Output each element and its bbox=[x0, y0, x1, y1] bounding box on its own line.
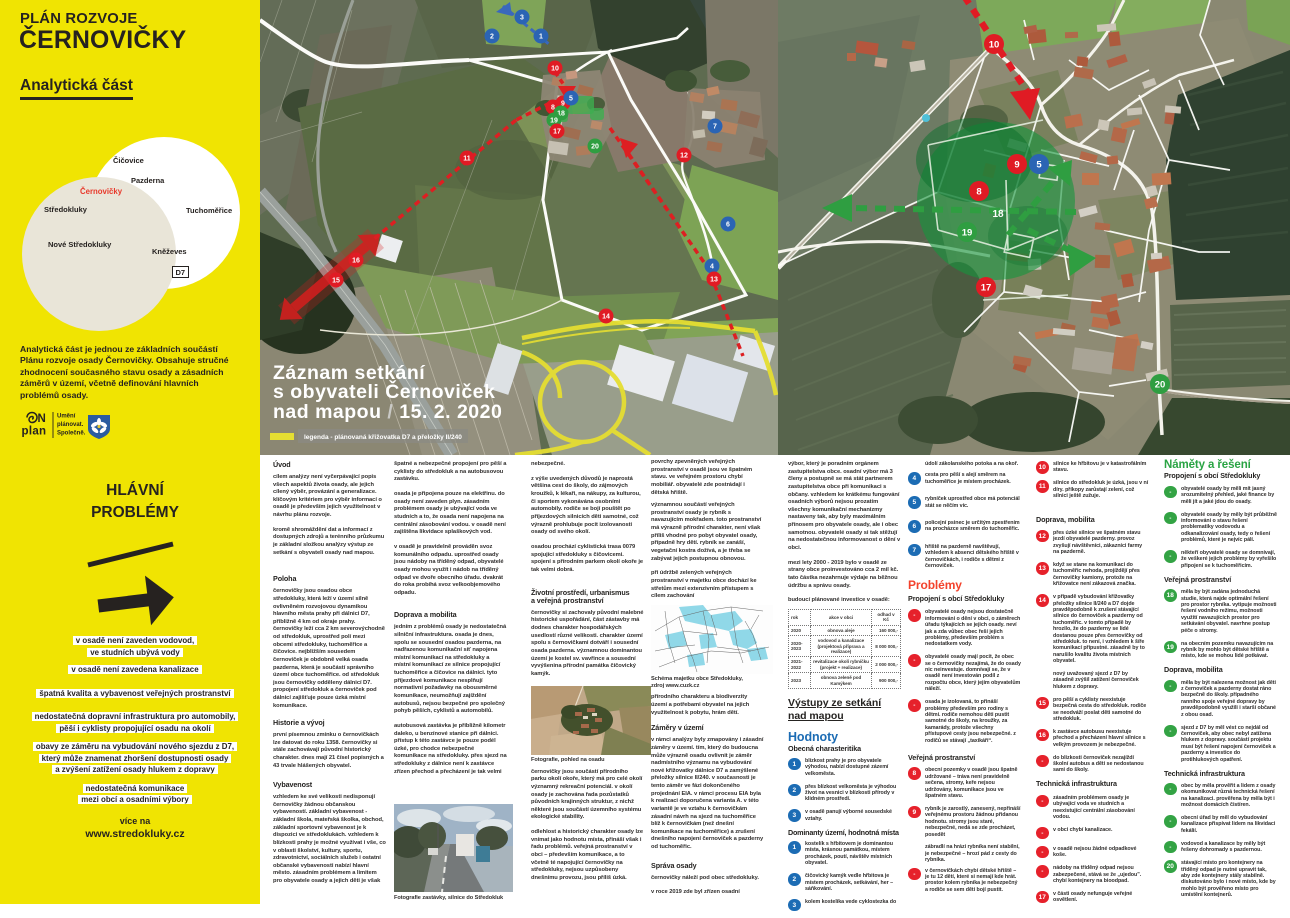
svg-text:2: 2 bbox=[490, 34, 494, 41]
svg-text:4: 4 bbox=[710, 264, 714, 271]
svg-text:1: 1 bbox=[539, 34, 543, 41]
svg-text:19: 19 bbox=[962, 228, 973, 239]
svg-text:5: 5 bbox=[569, 96, 573, 103]
svg-text:10: 10 bbox=[989, 40, 1000, 51]
svg-text:16: 16 bbox=[352, 258, 360, 265]
svg-text:plan: plan bbox=[22, 426, 47, 438]
svg-text:legenda - plánovaná křižovatka: legenda - plánovaná křižovatka D7 a přel… bbox=[304, 434, 462, 441]
svg-text:9: 9 bbox=[1014, 160, 1019, 171]
svg-text:5: 5 bbox=[1036, 160, 1042, 171]
svg-text:6: 6 bbox=[726, 222, 730, 229]
svg-text:7: 7 bbox=[713, 124, 717, 131]
svg-text:11: 11 bbox=[463, 156, 471, 163]
svg-text:Společně.: Společně. bbox=[57, 431, 86, 437]
svg-text:15: 15 bbox=[332, 278, 340, 285]
svg-text:14: 14 bbox=[602, 314, 610, 321]
svg-text:17: 17 bbox=[981, 283, 992, 294]
svg-text:N: N bbox=[38, 413, 46, 425]
svg-text:3: 3 bbox=[520, 15, 524, 22]
svg-text:plánovat.: plánovat. bbox=[57, 422, 84, 428]
svg-text:20: 20 bbox=[1155, 380, 1166, 391]
svg-text:18: 18 bbox=[992, 209, 1004, 220]
svg-text:12: 12 bbox=[680, 153, 688, 160]
svg-text:17: 17 bbox=[553, 129, 561, 136]
svg-text:Umění: Umění bbox=[57, 414, 76, 420]
svg-text:20: 20 bbox=[591, 144, 599, 151]
svg-text:13: 13 bbox=[710, 277, 718, 284]
svg-text:10: 10 bbox=[551, 66, 559, 73]
svg-text:8: 8 bbox=[976, 187, 981, 198]
